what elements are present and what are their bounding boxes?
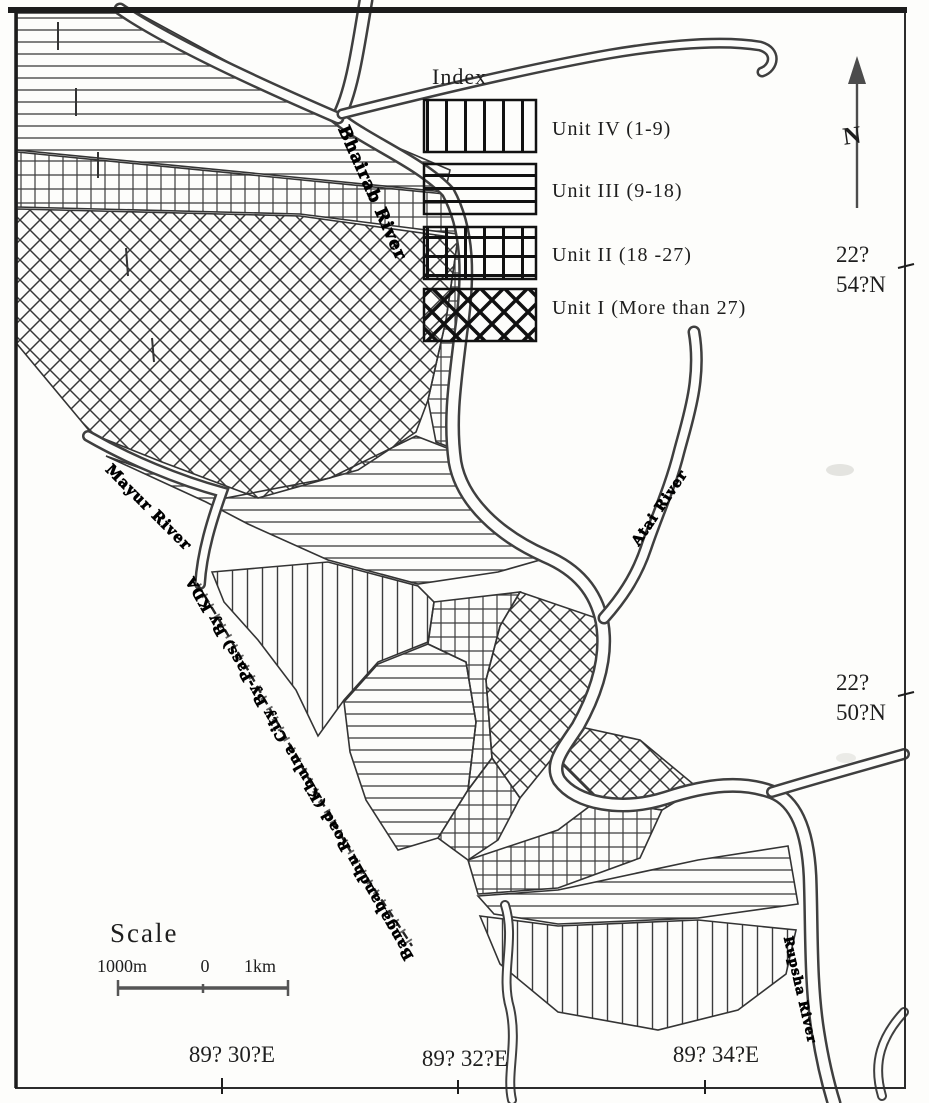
latitude-labels: 22? 54?N 22? 50?N xyxy=(836,242,886,725)
scale-zero-label: 0 xyxy=(201,956,210,976)
lat-22-50-deg: 22? xyxy=(836,670,869,695)
lon-89-32: 89? 32?E xyxy=(422,1046,508,1071)
lat-22-54-deg: 22? xyxy=(836,242,869,267)
legend-title: Index xyxy=(432,64,487,89)
scale-title: Scale xyxy=(110,918,178,948)
north-arrow: N xyxy=(841,56,866,208)
legend-label-unit-4: Unit IV (1-9) xyxy=(552,118,671,140)
scale-left-label: 1000m xyxy=(97,956,147,976)
map-canvas: Index Unit IV (1-9) Unit III (9-18) Unit… xyxy=(0,0,929,1103)
scale-right-label: 1km xyxy=(244,956,276,976)
legend-label-unit-3: Unit III (9-18) xyxy=(552,180,683,202)
north-arrow-head xyxy=(848,56,866,84)
lon-89-34: 89? 34?E xyxy=(673,1042,759,1067)
north-label: N xyxy=(841,122,863,151)
lat-22-54-min: 54?N xyxy=(836,272,886,297)
label-atai-river: Atai River xyxy=(628,467,691,549)
lon-89-30: 89? 30?E xyxy=(189,1042,275,1067)
map-figure: Index Unit IV (1-9) Unit III (9-18) Unit… xyxy=(0,0,929,1103)
river-branch-topright xyxy=(342,43,772,114)
river-corner-bottomright xyxy=(878,1012,904,1096)
legend-swatch-unit-3 xyxy=(424,164,536,214)
legend-label-unit-2: Unit II (18 -27) xyxy=(552,244,692,266)
scale-bar: Scale 1000m 0 1km xyxy=(97,918,288,996)
legend: Index Unit IV (1-9) Unit III (9-18) Unit… xyxy=(424,64,746,341)
legend-swatch-unit-1 xyxy=(424,289,536,341)
legend-swatch-unit-2 xyxy=(424,227,536,279)
region-unit4-south xyxy=(480,916,796,1030)
longitude-labels: 89? 30?E 89? 32?E 89? 34?E xyxy=(189,1042,759,1071)
legend-swatch-unit-4 xyxy=(424,100,536,152)
legend-label-unit-1: Unit I (More than 27) xyxy=(552,297,746,319)
lat-22-50-min: 50?N xyxy=(836,700,886,725)
